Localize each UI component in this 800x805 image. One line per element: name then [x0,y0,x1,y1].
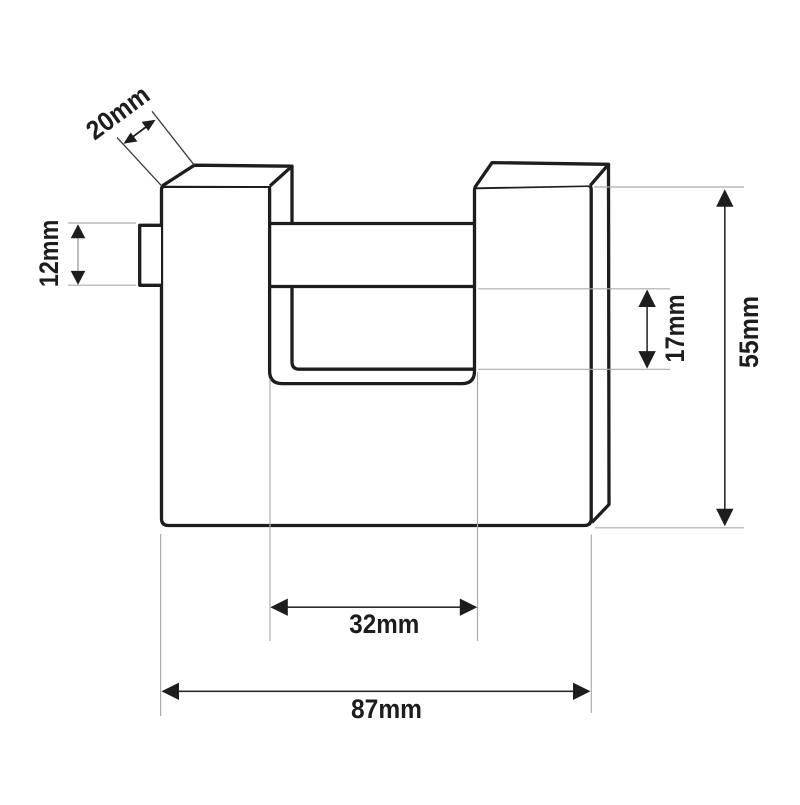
svg-text:55mm: 55mm [734,296,764,368]
svg-text:32mm: 32mm [349,609,419,639]
svg-text:12mm: 12mm [34,220,64,288]
svg-text:87mm: 87mm [351,694,422,724]
svg-text:17mm: 17mm [660,295,690,363]
